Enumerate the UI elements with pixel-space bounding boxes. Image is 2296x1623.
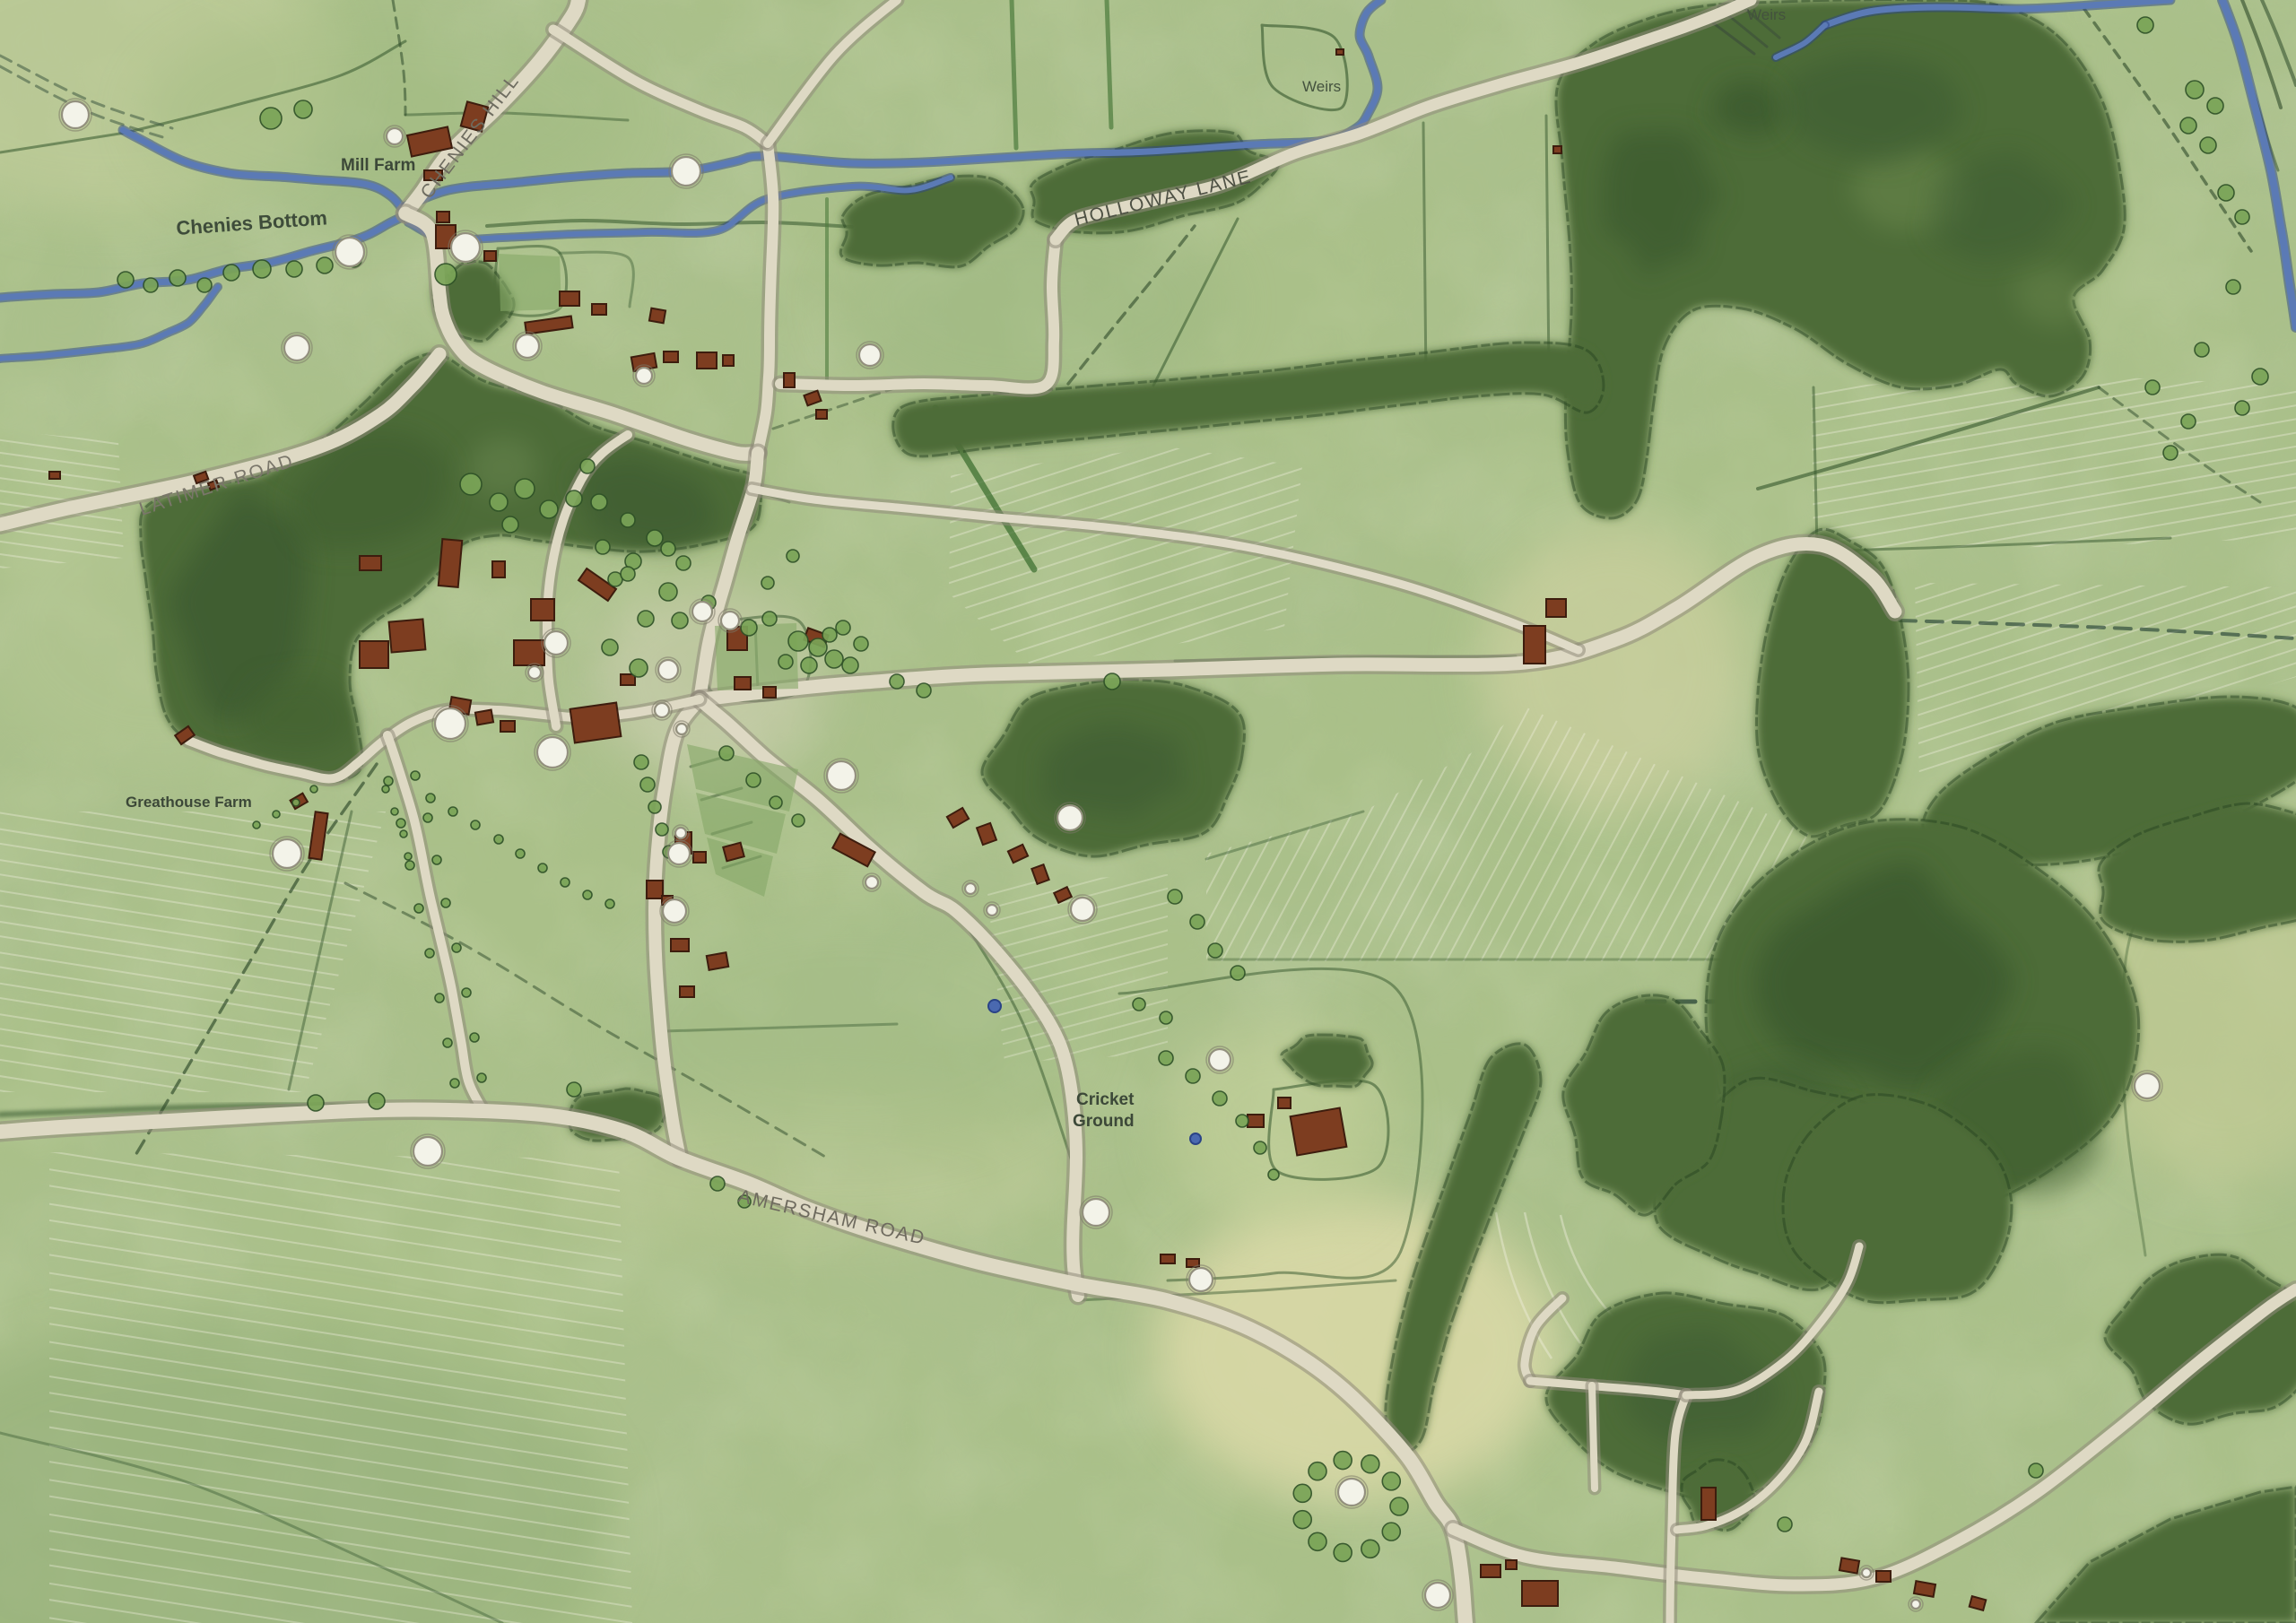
svg-text:Weirs: Weirs	[1747, 6, 1786, 23]
svg-text:Cricket: Cricket	[1076, 1090, 1135, 1109]
svg-text:Mill Farm: Mill Farm	[341, 156, 415, 175]
svg-text:Weirs: Weirs	[1302, 78, 1341, 95]
svg-text:Greathouse Farm: Greathouse Farm	[126, 794, 252, 811]
svg-text:Ground: Ground	[1073, 1112, 1135, 1131]
